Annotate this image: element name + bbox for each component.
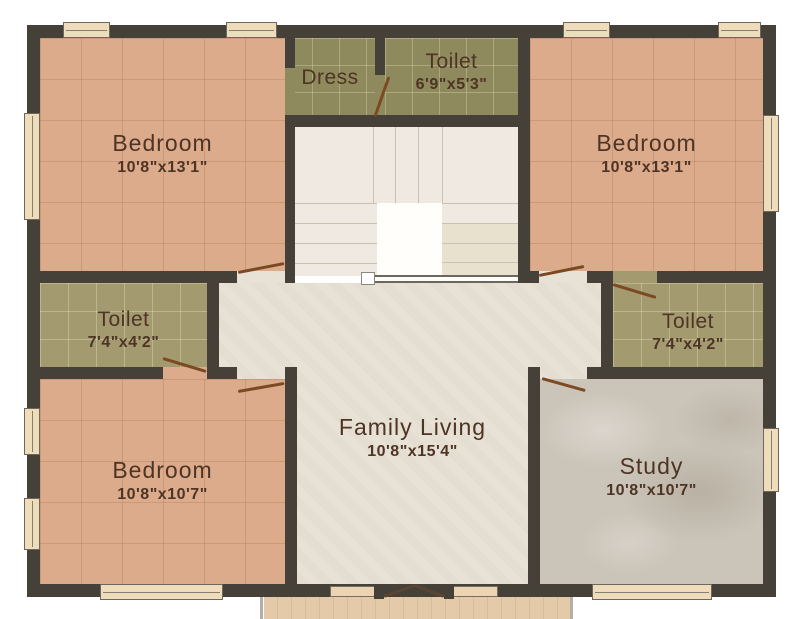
wall-bedroom-tr-south [657,271,763,283]
wall-outer-top [27,25,776,38]
window [592,584,712,600]
wall-toilet-left-east [207,283,219,379]
room-dims: 7'4"x4'2" [613,335,763,355]
stair-tread-line [442,223,518,224]
stair-newel [361,272,375,285]
window [718,22,761,38]
room-name: Dress [285,65,375,91]
wall-bedroom-bl-east [285,367,297,584]
room-dims: 10'8"x10'7" [540,481,763,501]
wall-stairs-east [518,25,530,283]
stair-tread-line [418,127,419,203]
stair-tread-line [442,127,443,203]
room-label-study: Study 10'8"x10'7" [540,452,763,501]
window [63,22,110,38]
window [24,113,40,220]
stair-tread-line [295,223,377,224]
stair-landing [377,203,442,276]
stair-tread-line [373,127,374,203]
window [763,115,779,212]
room-dims: 7'4"x4'2" [40,333,207,353]
room-label-family-living: Family Living 10'8"x15'4" [297,413,528,462]
room-name: Study [540,452,763,481]
wall-hall-left [207,367,237,379]
room-label-toilet-right: Toilet 7'4"x4'2" [613,309,763,355]
room-label-bedroom-top-right: Bedroom 10'8"x13'1" [530,129,763,178]
window [100,584,223,600]
stair-tread-line [442,262,518,263]
stair-tread-line [395,127,396,203]
room-name: Toilet [40,307,207,333]
room-name: Bedroom [530,129,763,158]
room-dims: 10'8"x15'4" [297,442,528,462]
wall-study-north [587,367,763,379]
staircase [295,127,518,276]
wall-toilet-left-south [27,367,163,379]
room-label-bedroom-top-left: Bedroom 10'8"x13'1" [40,129,285,178]
stair-right-flight [442,223,518,276]
wall-bedroom-tl-south [27,271,237,283]
room-label-bedroom-bottom-left: Bedroom 10'8"x10'7" [40,456,285,505]
window [563,22,610,38]
wall-bedroom-dress [285,25,295,68]
balcony [264,597,570,619]
entry-door-jamb [374,584,384,599]
balcony-rail [570,597,573,619]
wall-study-west [528,367,540,584]
room-dims: 10'8"x10'7" [40,485,285,505]
room-label-dress: Dress [285,65,375,91]
balcony-rail [260,597,263,619]
room-name: Bedroom [40,456,285,485]
room-dims: 6'9"x5'3" [385,75,518,95]
stair-tread-line [442,243,518,244]
room-name: Toilet [385,49,518,75]
window [24,498,40,550]
room-name: Family Living [297,413,528,442]
stair-tread-line [295,263,377,264]
room-dims: 10'8"x13'1" [530,158,763,178]
room-name: Bedroom [40,129,285,158]
entry-door-jamb [444,584,454,599]
wall-stairs-west [285,127,295,283]
window [226,22,277,38]
stair-tread-line [295,243,377,244]
room-name: Toilet [613,309,763,335]
room-label-toilet-left: Toilet 7'4"x4'2" [40,307,207,353]
room-dims: 10'8"x13'1" [40,158,285,178]
room-label-toilet-top: Toilet 6'9"x5'3" [385,49,518,95]
stair-railing [372,275,518,283]
wall-bedroom-tr-south [530,271,539,283]
floor-plan: Bedroom 10'8"x13'1" Dress Toilet 6'9"x5'… [0,0,800,619]
wall-toilet-right-west [601,283,613,379]
window [763,428,779,492]
window [24,408,40,455]
wall-outer-right [763,25,776,597]
doorway-floor [613,271,657,283]
window [330,586,378,597]
window [453,586,498,597]
wall-dress-toilet [375,25,385,75]
wall-stairs-top [285,115,518,127]
wall-bedroom-tr-south [587,271,613,283]
